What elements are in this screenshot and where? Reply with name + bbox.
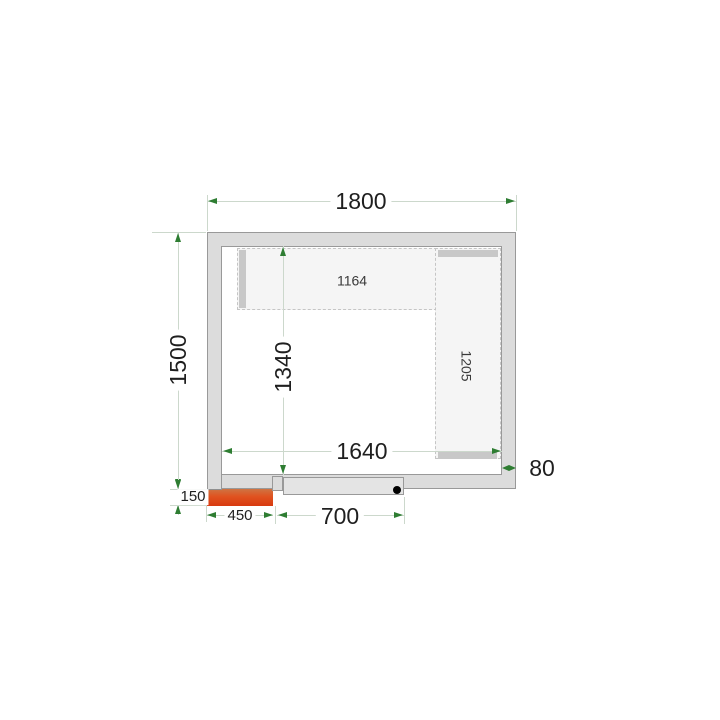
dim-arrow-icon xyxy=(175,505,181,514)
shelf-right-length-label: 1205 xyxy=(459,345,474,386)
dim-arrow-icon xyxy=(208,198,217,204)
dim-arrow-icon xyxy=(278,512,287,518)
dim-arrow-icon xyxy=(223,448,232,454)
shelf-top-edge-bar xyxy=(239,250,246,308)
extension-line xyxy=(404,497,405,524)
inner-depth-label: 1340 xyxy=(271,336,295,397)
inner-width-label: 1640 xyxy=(331,439,392,463)
wall-thickness-label: 80 xyxy=(524,456,560,480)
outer-width-label: 1800 xyxy=(330,189,391,213)
shelf-right-top-bar xyxy=(438,250,498,257)
outer-depth-label: 1500 xyxy=(166,329,190,390)
cold-room-floor-plan: 1164 1205 1800 1500 1340 1640 80 150 450… xyxy=(0,0,720,720)
dim-arrow-icon xyxy=(492,448,501,454)
door-handle-dot xyxy=(393,486,401,494)
dim-arrow-icon xyxy=(175,233,181,242)
shelf-top-length-label: 1164 xyxy=(332,274,372,289)
dim-arrow-icon xyxy=(207,512,216,518)
door-leaf xyxy=(283,477,404,495)
dim-arrow-icon xyxy=(502,465,509,471)
left-wall-over-unit xyxy=(207,459,222,490)
dim-arrow-icon xyxy=(394,512,403,518)
dim-arrow-icon xyxy=(506,198,515,204)
extension-line xyxy=(170,505,207,506)
unit-protrusion-label: 150 xyxy=(177,489,208,505)
unit-width-label: 450 xyxy=(224,508,255,524)
dim-arrow-icon xyxy=(280,247,286,256)
dim-arrow-icon xyxy=(280,465,286,474)
wall-stub xyxy=(272,476,283,491)
dim-arrow-icon xyxy=(509,465,516,471)
extension-line xyxy=(275,506,276,524)
shelf-right-bottom-bar xyxy=(438,452,497,459)
dim-arrow-icon xyxy=(264,512,273,518)
door-width-label: 700 xyxy=(316,504,364,528)
extension-line xyxy=(516,195,517,231)
